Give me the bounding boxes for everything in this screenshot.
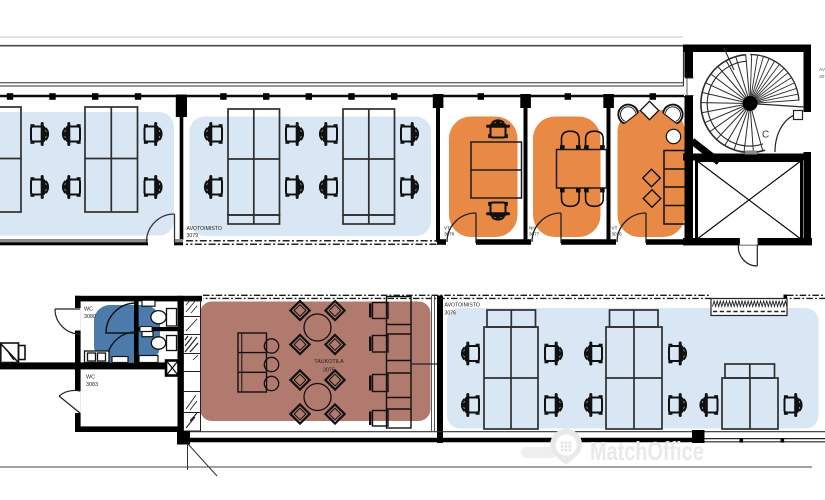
svg-text:3076: 3076	[612, 232, 623, 237]
svg-text:AVOTOIMISTO: AVOTOIMISTO	[445, 303, 480, 309]
svg-text:3075: 3075	[323, 368, 335, 374]
svg-text:VT: VT	[612, 226, 618, 231]
svg-text:AVOTOIMISTO: AVOTOIMISTO	[187, 226, 222, 232]
svg-text:3077: 3077	[529, 232, 540, 237]
svg-text:NH: NH	[529, 226, 536, 231]
svg-text:307: 307	[819, 74, 825, 80]
svg-text:3078: 3078	[444, 232, 455, 237]
svg-text:C: C	[762, 130, 769, 141]
svg-text:AVO: AVO	[819, 67, 825, 73]
svg-text:MatchOffice: MatchOffice	[590, 437, 704, 466]
svg-text:3079: 3079	[187, 233, 199, 239]
svg-text:WC: WC	[84, 307, 93, 313]
svg-text:VT: VT	[444, 226, 450, 231]
svg-text:3083: 3083	[86, 382, 98, 388]
svg-text:WC: WC	[86, 375, 95, 381]
svg-text:3080: 3080	[84, 314, 96, 320]
svg-text:TAUKOTILA: TAUKOTILA	[314, 359, 344, 365]
svg-text:3076: 3076	[445, 311, 457, 317]
